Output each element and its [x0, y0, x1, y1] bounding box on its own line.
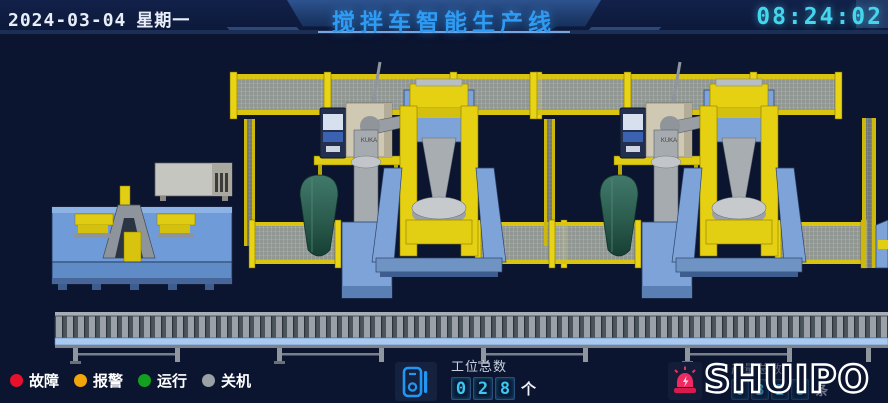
- digit-box: 8: [495, 377, 515, 400]
- date-display: 2024-03-04星期一: [8, 6, 190, 31]
- robot-cell-2: [530, 62, 867, 298]
- brand-logo: SHUIPO: [704, 358, 870, 401]
- legend-item-fault: 故障: [10, 370, 59, 391]
- fault-status-dot: [10, 374, 23, 387]
- siren-icon: [671, 365, 699, 397]
- alarm-status-dot: [74, 374, 87, 387]
- digit-box: 2: [473, 377, 493, 400]
- status-bar: 故障 报警 运行 关机 工位总数: [0, 360, 888, 403]
- time-display: 08:24:02: [756, 4, 883, 30]
- date-value: 2024-03-04: [8, 10, 126, 31]
- station-counter-label: 工位总数: [451, 356, 536, 375]
- station-counter-unit: 个: [521, 378, 536, 399]
- production-line-scene: KUKA KUKA: [0, 0, 888, 403]
- robot-cell-1: [230, 62, 567, 298]
- running-status-dot: [138, 374, 151, 387]
- legend-label: 关机: [221, 370, 251, 391]
- digit-box: 0: [451, 377, 471, 400]
- tally-device-icon: [401, 365, 431, 399]
- status-legend: 故障 报警 运行 关机: [10, 370, 251, 391]
- production-line-dashboard: KUKA KUKA: [0, 0, 888, 403]
- legend-label: 报警: [93, 370, 123, 391]
- fixture-station: [52, 163, 232, 290]
- station-counter-digits: 0 2 8 个: [451, 377, 536, 400]
- station-counter: 工位总数 0 2 8 个: [451, 356, 536, 400]
- legend-label: 故障: [29, 370, 59, 391]
- header-bar: 2024-03-04星期一 搅拌车智能生产线 08:24:02: [0, 0, 888, 34]
- legend-item-alarm: 报警: [74, 370, 123, 391]
- legend-item-off: 关机: [202, 370, 251, 391]
- page-title: 搅拌车智能生产线: [287, 3, 601, 37]
- station-counter-tile: [395, 362, 437, 401]
- weekday-value: 星期一: [136, 11, 190, 30]
- cabinet-brand-label: KUKA: [661, 138, 677, 144]
- legend-item-running: 运行: [138, 370, 187, 391]
- alarm-beacon-tile: [668, 362, 702, 400]
- legend-label: 运行: [157, 370, 187, 391]
- off-status-dot: [202, 374, 215, 387]
- partial-station: [862, 118, 888, 268]
- cabinet-brand-label: KUKA: [361, 138, 377, 144]
